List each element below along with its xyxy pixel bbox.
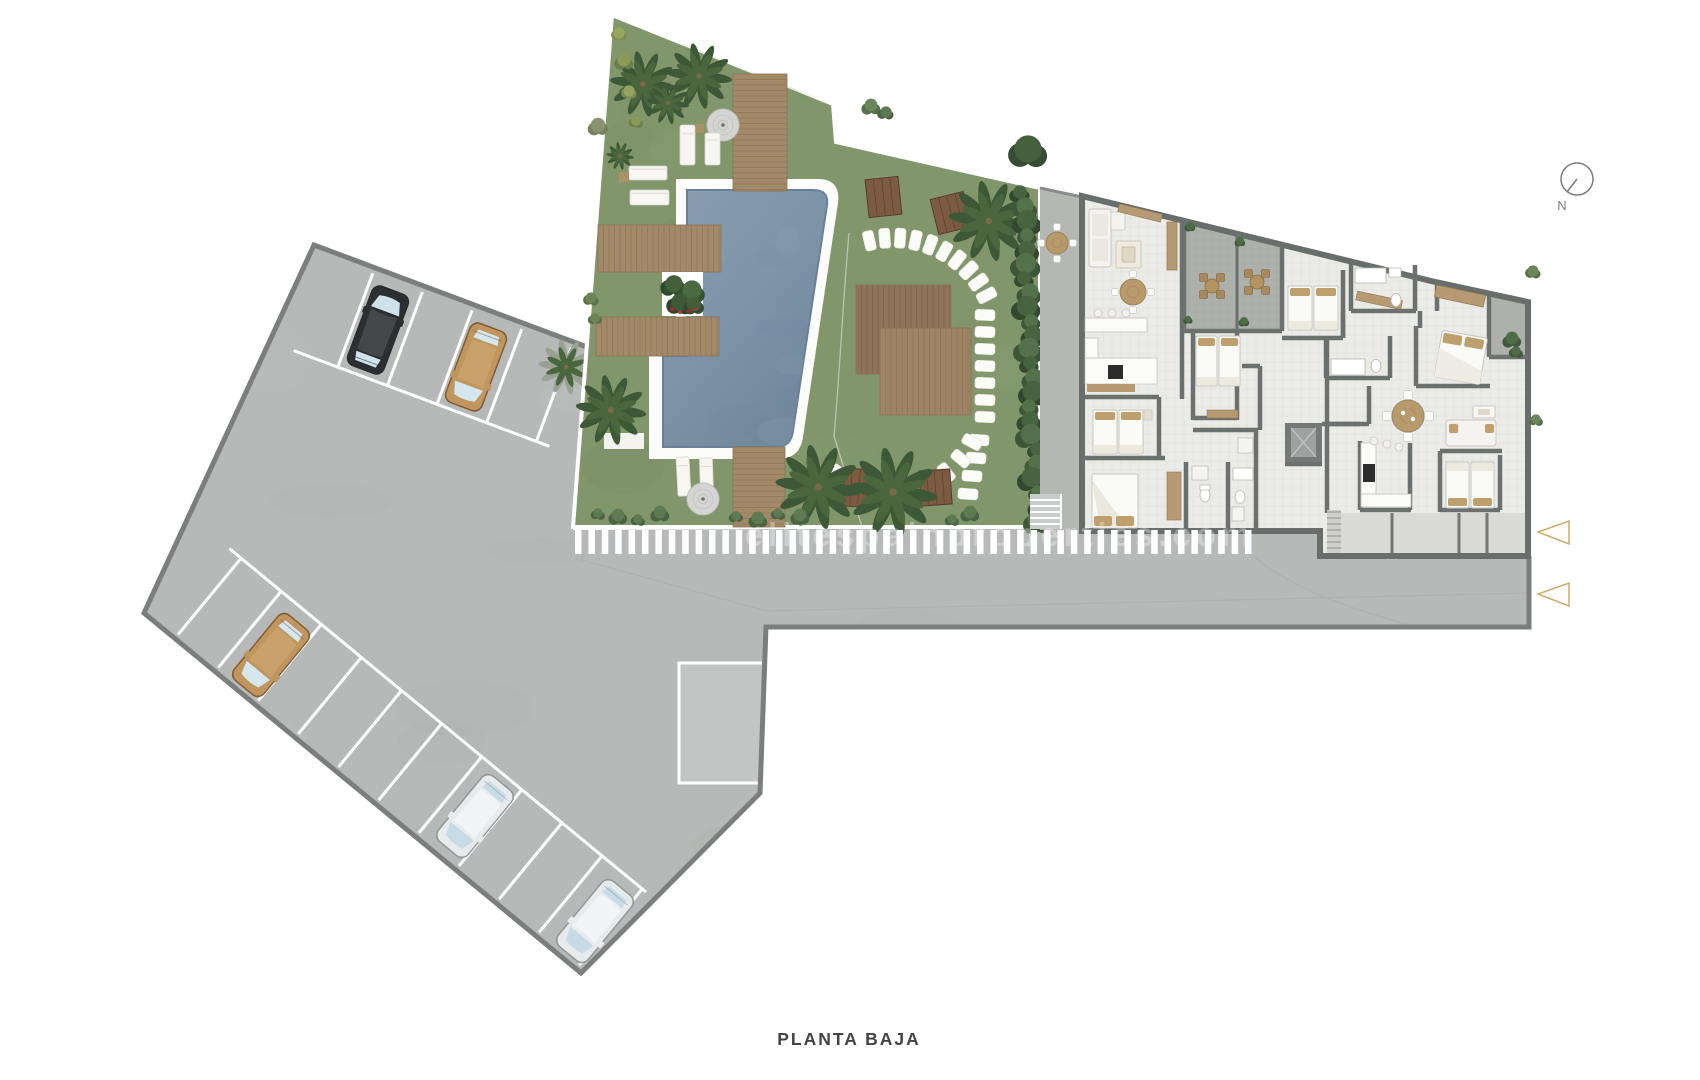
svg-text:N: N bbox=[1557, 198, 1566, 213]
svg-text:elitespainproperties.com: elitespainproperties.com bbox=[745, 516, 1256, 553]
svg-text:PLANTA BAJA: PLANTA BAJA bbox=[777, 1029, 921, 1049]
